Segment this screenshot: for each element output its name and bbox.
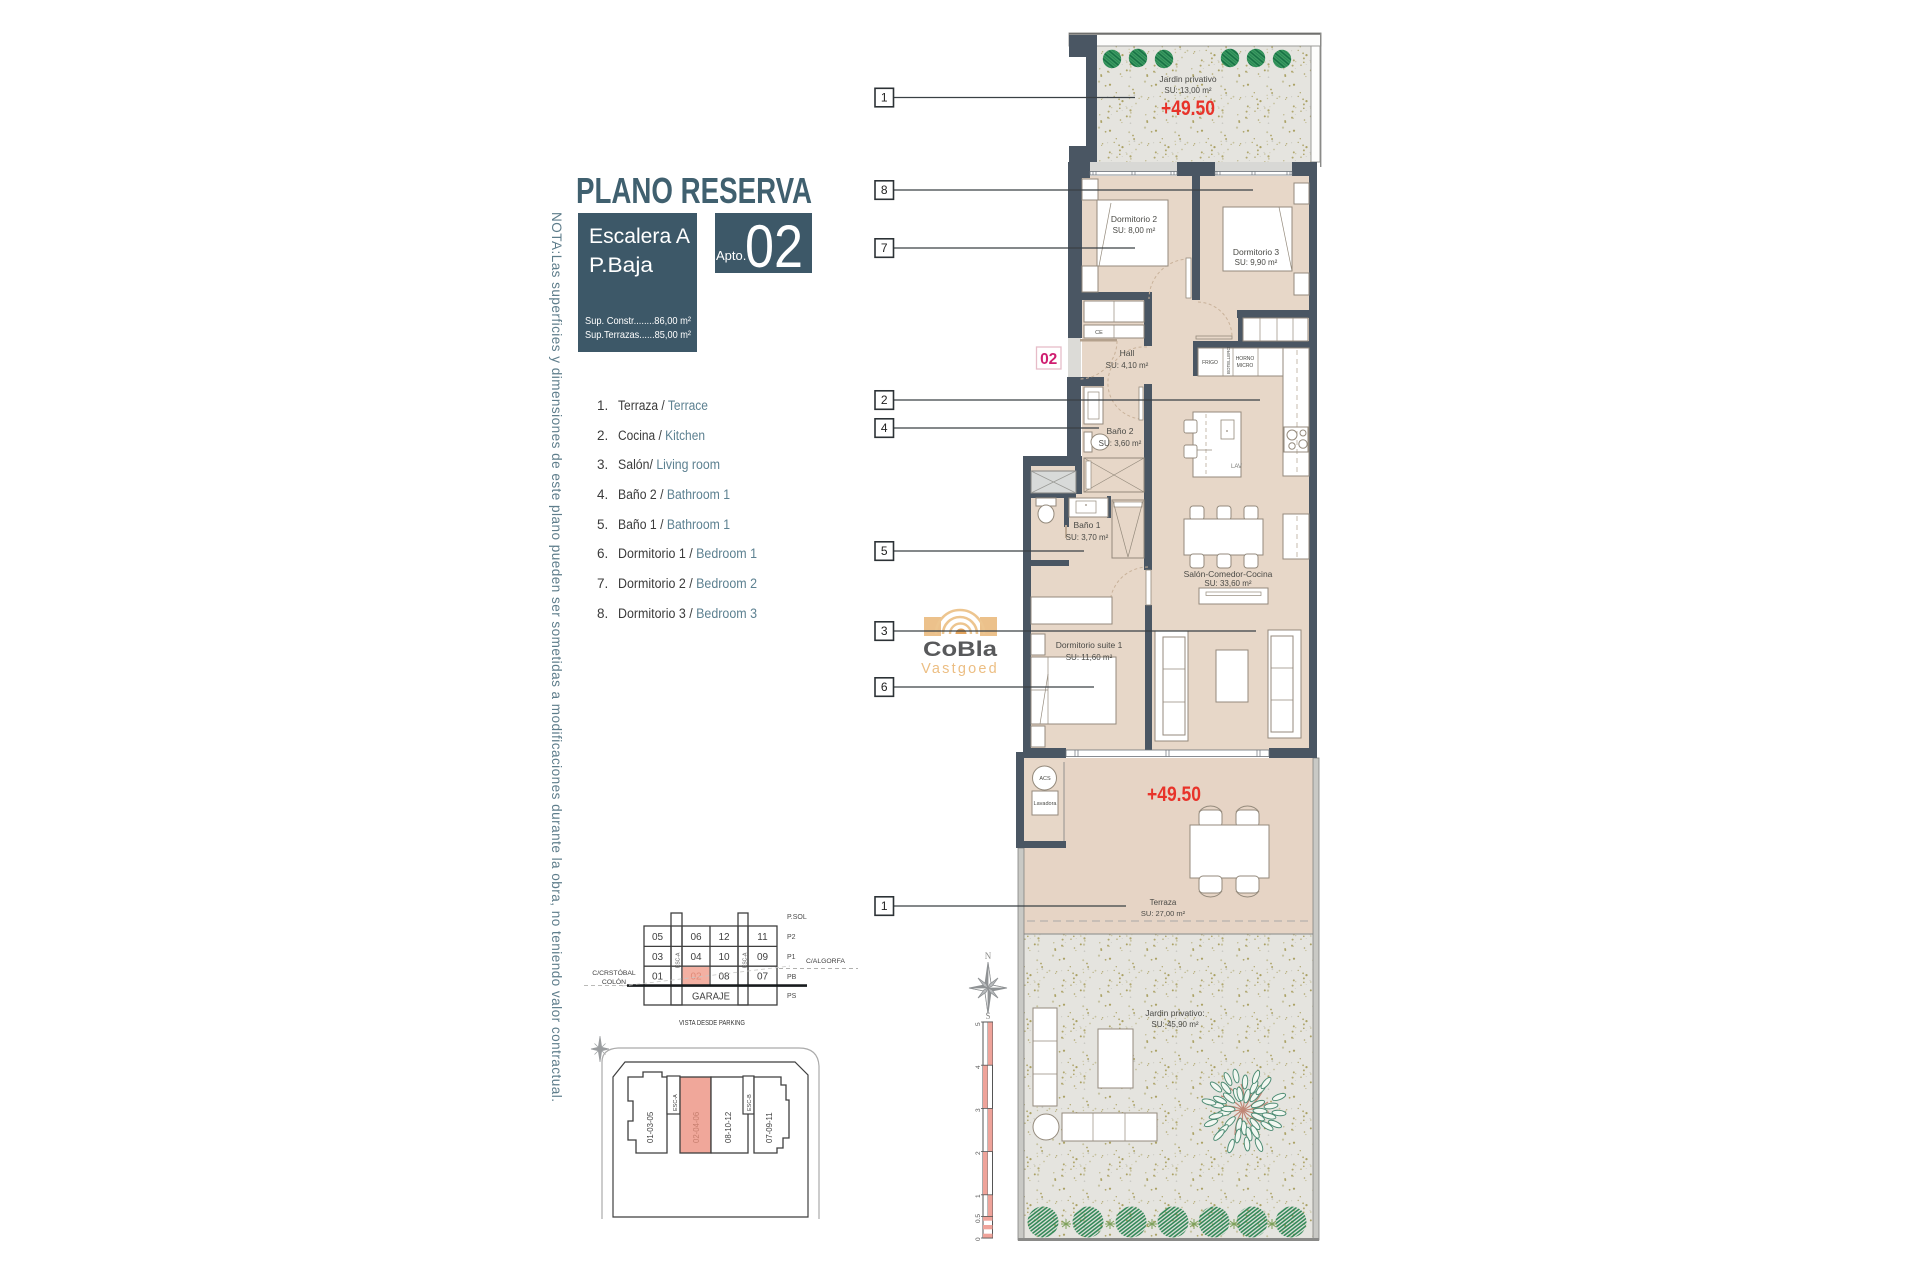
svg-text:Terraza: Terraza [1150, 898, 1177, 907]
svg-text:09: 09 [757, 952, 769, 963]
svg-text:SU: 4,10 m²: SU: 4,10 m² [1106, 361, 1149, 370]
svg-text:1: 1 [881, 899, 888, 913]
svg-text:Dormitorio 3: Dormitorio 3 [1233, 247, 1280, 257]
svg-text:8.: 8. [597, 606, 608, 621]
svg-text:Lavadora: Lavadora [1034, 801, 1058, 807]
svg-text:5: 5 [881, 544, 888, 558]
svg-text:Sup. Constr........86,00 m²: Sup. Constr........86,00 m² [585, 315, 691, 327]
svg-text:NOTA:Las superficies y dimensi: NOTA:Las superficies y dimensiones de es… [549, 212, 564, 1102]
svg-text:PLANO RESERVA: PLANO RESERVA [576, 170, 812, 211]
svg-text:SU: 27,00 m²: SU: 27,00 m² [1141, 909, 1186, 918]
svg-text:ACS: ACS [1039, 776, 1051, 782]
svg-text:SU: 45,90 m²: SU: 45,90 m² [1151, 1020, 1198, 1029]
svg-text:ESC-A: ESC-A [673, 1094, 679, 1111]
svg-text:COLÓN: COLÓN [602, 977, 626, 986]
svg-text:03: 03 [652, 952, 664, 963]
svg-text:Escalera A: Escalera A [589, 225, 690, 248]
svg-text:5: 5 [975, 1022, 982, 1026]
svg-text:P1: P1 [787, 954, 796, 961]
svg-text:SU: 8,00 m²: SU: 8,00 m² [1113, 226, 1156, 235]
svg-text:0: 0 [975, 1237, 982, 1241]
svg-text:Dormitorio 2: Dormitorio 2 [1111, 214, 1158, 224]
svg-text:1: 1 [975, 1194, 982, 1198]
svg-text:MICRO: MICRO [1237, 363, 1254, 369]
svg-text:HORNO: HORNO [1236, 356, 1255, 362]
svg-text:6: 6 [881, 680, 888, 694]
svg-text:0.5: 0.5 [975, 1214, 982, 1223]
svg-text:SU: 13,00 m²: SU: 13,00 m² [1164, 86, 1211, 95]
svg-text:Hall: Hall [1120, 348, 1135, 358]
svg-text:Dormitorio 2 / Bedroom 2: Dormitorio 2 / Bedroom 2 [618, 576, 757, 591]
svg-text:Cocina / Kitchen: Cocina / Kitchen [618, 428, 705, 443]
svg-text:Dormitorio 1 / Bedroom 1: Dormitorio 1 / Bedroom 1 [618, 546, 757, 561]
svg-text:P.Baja: P.Baja [589, 254, 653, 277]
svg-text:1.: 1. [597, 398, 608, 413]
svg-text:+49.50: +49.50 [1161, 97, 1215, 120]
svg-text:C/ALGORFA: C/ALGORFA [806, 958, 845, 965]
svg-text:ESC-B: ESC-B [747, 1094, 753, 1111]
svg-text:ESC-A: ESC-A [743, 952, 749, 968]
svg-text:08-10-12: 08-10-12 [724, 1112, 733, 1143]
svg-text:Dormitorio suite 1: Dormitorio suite 1 [1056, 640, 1123, 650]
svg-text:12: 12 [718, 932, 730, 943]
svg-text:Jardin privativo: Jardin privativo [1159, 74, 1216, 84]
svg-text:P.SOL: P.SOL [787, 914, 807, 921]
svg-text:Baño 1 / Bathroom 1: Baño 1 / Bathroom 1 [618, 517, 730, 532]
svg-text:4: 4 [975, 1065, 982, 1069]
svg-text:06: 06 [690, 932, 702, 943]
svg-text:5.: 5. [597, 517, 608, 532]
svg-text:01-03-05: 01-03-05 [646, 1111, 655, 1143]
svg-text:02: 02 [745, 213, 803, 280]
svg-text:Salón-Comedor-Cocina: Salón-Comedor-Cocina [1184, 569, 1273, 579]
svg-text:7.: 7. [597, 576, 608, 591]
svg-text:07: 07 [757, 972, 769, 983]
svg-text:Salón/ Living room: Salón/ Living room [618, 457, 720, 472]
svg-text:2: 2 [881, 393, 888, 407]
svg-text:GARAJE: GARAJE [692, 991, 730, 1003]
svg-text:4: 4 [881, 421, 888, 435]
svg-text:Vastgoed: Vastgoed [921, 661, 999, 677]
svg-text:PS: PS [787, 993, 797, 1000]
svg-text:11: 11 [757, 932, 768, 943]
svg-text:Jardin privativo:: Jardin privativo: [1145, 1008, 1205, 1018]
svg-text:7: 7 [881, 241, 888, 255]
svg-text:SU: 3,70 m²: SU: 3,70 m² [1066, 533, 1109, 542]
svg-text:3: 3 [975, 1108, 982, 1112]
svg-text:SU: 3,60 m²: SU: 3,60 m² [1099, 439, 1142, 448]
svg-text:1: 1 [881, 91, 888, 105]
svg-text:Dormitorio 3 / Bedroom 3: Dormitorio 3 / Bedroom 3 [618, 606, 757, 621]
svg-text:01: 01 [652, 972, 664, 983]
svg-text:02-04-06: 02-04-06 [692, 1112, 701, 1143]
svg-text:Sup.Terrazas......85,00 m²: Sup.Terrazas......85,00 m² [585, 329, 691, 341]
svg-text:2.: 2. [597, 428, 608, 443]
svg-text:BOTELLERO: BOTELLERO [1226, 346, 1231, 374]
svg-text:04: 04 [690, 952, 702, 963]
svg-text:Apto.: Apto. [716, 248, 746, 263]
svg-text:CE: CE [1095, 330, 1103, 336]
svg-text:05: 05 [652, 932, 664, 943]
svg-text:07-09-11: 07-09-11 [765, 1112, 774, 1143]
svg-text:2: 2 [975, 1151, 982, 1155]
svg-text:+49.50: +49.50 [1147, 783, 1201, 806]
svg-text:SU: 11,60 m²: SU: 11,60 m² [1066, 653, 1113, 662]
svg-text:ESC-A: ESC-A [676, 952, 682, 968]
svg-text:Baño 1: Baño 1 [1074, 520, 1101, 530]
svg-text:Terraza / Terrace: Terraza / Terrace [618, 398, 708, 413]
svg-text:LAV: LAV [1231, 464, 1242, 470]
svg-text:FRIGO: FRIGO [1202, 360, 1218, 366]
svg-text:6.: 6. [597, 546, 608, 561]
svg-text:3.: 3. [597, 457, 608, 472]
svg-text:C/CRSTÓBAL: C/CRSTÓBAL [592, 968, 636, 977]
svg-text:SU: 9,90 m²: SU: 9,90 m² [1235, 258, 1278, 267]
svg-text:P2: P2 [787, 934, 796, 941]
svg-text:Baño 2: Baño 2 [1107, 426, 1134, 436]
svg-text:N: N [985, 951, 992, 961]
svg-text:Baño 2 / Bathroom 1: Baño 2 / Bathroom 1 [618, 487, 730, 502]
svg-text:02: 02 [1040, 351, 1057, 368]
svg-text:VISTA DESDE PARKING: VISTA DESDE PARKING [679, 1018, 745, 1027]
svg-text:10: 10 [718, 952, 730, 963]
svg-text:8: 8 [881, 183, 888, 197]
svg-text:SU: 33,60 m²: SU: 33,60 m² [1204, 579, 1251, 588]
svg-text:CoBla: CoBla [923, 638, 997, 661]
svg-text:3: 3 [881, 624, 888, 638]
svg-text:4.: 4. [597, 487, 608, 502]
svg-text:PB: PB [787, 974, 797, 981]
